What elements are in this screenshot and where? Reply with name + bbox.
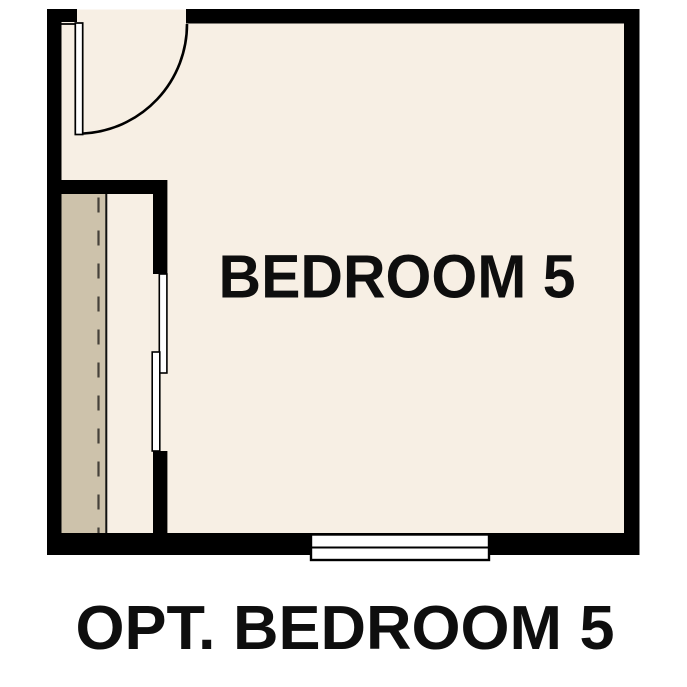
svg-text:BEDROOM 5: BEDROOM 5 [219, 243, 576, 312]
svg-text:OPT. BEDROOM 5: OPT. BEDROOM 5 [76, 594, 615, 663]
